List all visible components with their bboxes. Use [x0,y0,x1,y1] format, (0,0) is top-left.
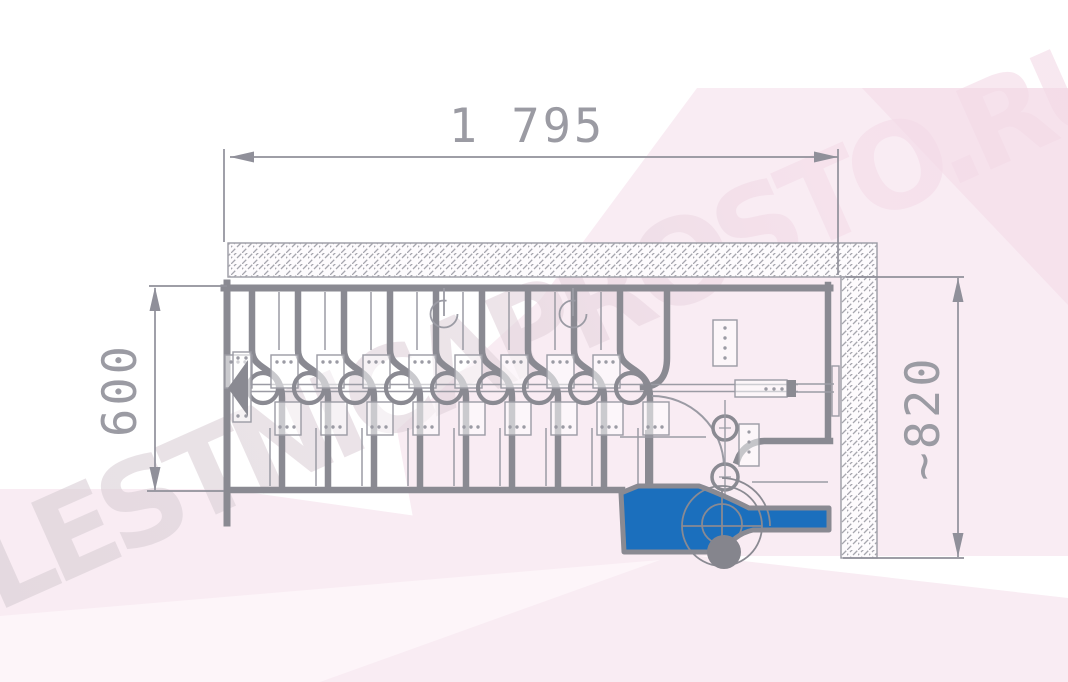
dimension-label-width: 1 795 [449,99,605,154]
staircase-drawing-canvas: LESTNICAPROSTO.RU [0,0,1068,682]
tread-modules [225,289,669,487]
right-wall [841,277,877,558]
wall-beam-plate [735,380,787,397]
staircase-plan-svg: 1 795 600 ~820 [0,0,1068,682]
dimension-label-depth: 600 [93,343,148,437]
top-wall [228,243,877,277]
dimension-label-height: ~820 [896,355,951,480]
last-stringer-curve [643,289,667,387]
wall-anchor [832,366,839,416]
newel-post [707,535,741,569]
